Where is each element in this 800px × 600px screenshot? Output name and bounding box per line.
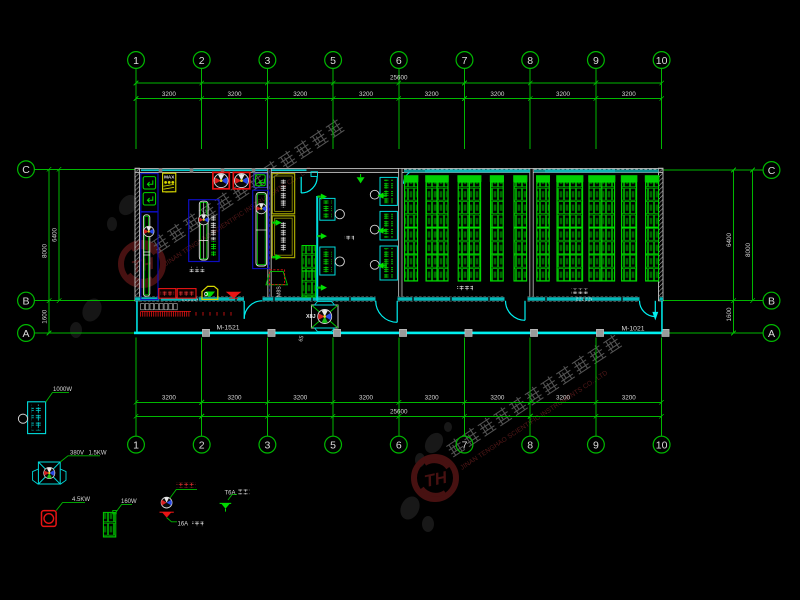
svg-text:3: 3 — [264, 439, 270, 451]
svg-text:X8J: X8J — [306, 314, 316, 320]
svg-text:10: 10 — [656, 55, 668, 67]
svg-text:3200: 3200 — [228, 91, 243, 98]
svg-text:3200: 3200 — [425, 91, 440, 98]
svg-text:3200: 3200 — [293, 91, 308, 98]
svg-text:8: 8 — [527, 55, 533, 67]
svg-text:2: 2 — [199, 55, 205, 67]
svg-text:3: 3 — [264, 55, 270, 67]
svg-text:5: 5 — [330, 55, 336, 67]
svg-text:C: C — [768, 165, 776, 177]
svg-text:A: A — [22, 328, 29, 340]
svg-text:3200: 3200 — [359, 91, 374, 98]
svg-text:10: 10 — [656, 439, 668, 451]
svg-text:T6A: T6A — [225, 490, 236, 496]
svg-text:M-1021: M-1021 — [621, 326, 644, 333]
svg-text:8: 8 — [527, 439, 533, 451]
svg-text:3200: 3200 — [490, 395, 505, 402]
svg-text:9: 9 — [593, 55, 599, 67]
svg-text:1.5KW: 1.5KW — [89, 451, 107, 457]
svg-text:16A: 16A — [178, 522, 189, 528]
svg-text:7: 7 — [462, 55, 468, 67]
svg-text:9: 9 — [593, 439, 599, 451]
svg-text:6400: 6400 — [726, 233, 733, 248]
svg-text:3200: 3200 — [359, 395, 374, 402]
svg-text:3200: 3200 — [490, 91, 505, 98]
svg-text:3200: 3200 — [228, 395, 243, 402]
svg-text:1: 1 — [133, 55, 139, 67]
svg-text:M8S: M8S — [277, 286, 283, 297]
svg-text:3200: 3200 — [556, 91, 571, 98]
svg-text:6400: 6400 — [52, 228, 59, 243]
svg-text:5: 5 — [330, 439, 336, 451]
svg-text:3200: 3200 — [622, 395, 637, 402]
svg-text:3200: 3200 — [162, 91, 177, 98]
svg-text:3200: 3200 — [162, 395, 177, 402]
svg-text:7: 7 — [462, 439, 468, 451]
svg-text:25600: 25600 — [390, 75, 408, 82]
svg-text:8000: 8000 — [745, 243, 752, 258]
svg-text:1600: 1600 — [726, 307, 733, 322]
svg-text:4.5KW: 4.5KW — [72, 497, 90, 503]
svg-text:M-1521: M-1521 — [216, 325, 239, 332]
svg-text:2: 2 — [199, 439, 205, 451]
svg-text:MAX: MAX — [164, 175, 175, 180]
svg-text:3200: 3200 — [293, 395, 308, 402]
svg-text:380V: 380V — [70, 451, 84, 457]
svg-text:A: A — [768, 328, 775, 340]
svg-text:25600: 25600 — [390, 409, 408, 416]
svg-text:1600: 1600 — [42, 309, 49, 324]
svg-text:8000: 8000 — [42, 244, 49, 259]
svg-text:6: 6 — [396, 55, 402, 67]
svg-text:1000W: 1000W — [53, 387, 72, 393]
svg-text:3200: 3200 — [556, 395, 571, 402]
svg-text:6: 6 — [396, 439, 402, 451]
svg-text:160W: 160W — [121, 499, 137, 505]
svg-text:1: 1 — [133, 439, 139, 451]
svg-text:B: B — [768, 295, 775, 307]
svg-text:3200: 3200 — [425, 395, 440, 402]
svg-text:B: B — [22, 295, 29, 307]
svg-text:3200: 3200 — [622, 91, 637, 98]
svg-text:C: C — [22, 164, 30, 176]
